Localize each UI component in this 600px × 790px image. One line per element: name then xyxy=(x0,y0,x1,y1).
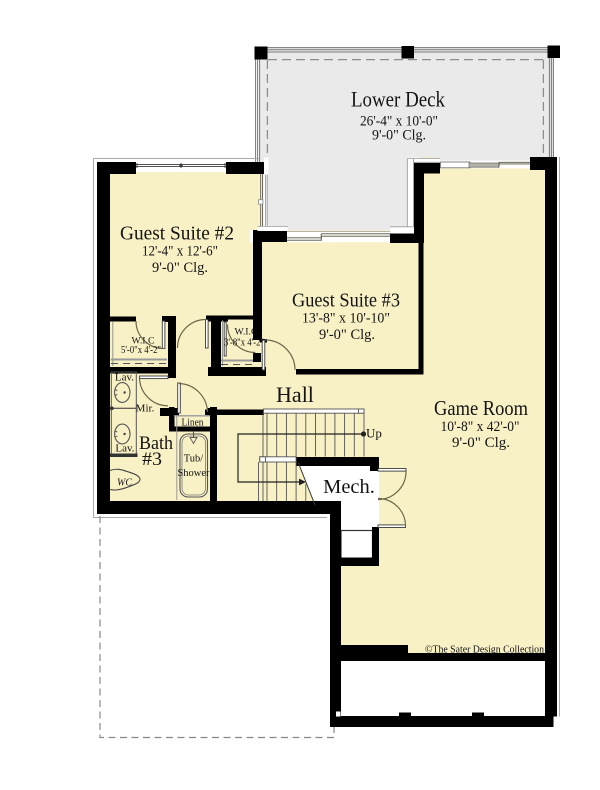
svg-text:Lav.: Lav. xyxy=(115,372,134,384)
svg-text:9'-0" Clg.: 9'-0" Clg. xyxy=(319,327,375,343)
svg-text:3'-8"x 4'-2": 3'-8"x 4'-2" xyxy=(224,338,264,349)
svg-text:WC: WC xyxy=(117,478,132,489)
svg-text:Mech.: Mech. xyxy=(323,476,375,498)
svg-text:9'-0" Clg.: 9'-0" Clg. xyxy=(372,128,426,144)
svg-text:12'-4" x 12'-6": 12'-4" x 12'-6" xyxy=(142,244,218,260)
svg-text:©The Sater Design Collection: ©The Sater Design Collection xyxy=(425,645,545,656)
svg-text:Up: Up xyxy=(366,426,382,441)
svg-text:#3: #3 xyxy=(142,449,162,470)
svg-text:Linen: Linen xyxy=(182,418,205,429)
svg-text:Hall: Hall xyxy=(276,382,314,407)
svg-text:W.I.C: W.I.C xyxy=(234,327,257,338)
svg-text:Guest Suite #2: Guest Suite #2 xyxy=(120,223,234,245)
svg-text:5'-0"x 4'-2": 5'-0"x 4'-2" xyxy=(121,345,161,356)
svg-text:9'-0" Clg.: 9'-0" Clg. xyxy=(452,435,510,451)
svg-text:Lav.: Lav. xyxy=(115,443,134,455)
svg-text:10'-8" x 42'-0": 10'-8" x 42'-0" xyxy=(441,419,520,435)
svg-text:Tub/: Tub/ xyxy=(184,454,204,465)
svg-text:13'-8" x 10'-10": 13'-8" x 10'-10" xyxy=(302,311,390,327)
svg-text:Lower Deck: Lower Deck xyxy=(351,87,445,112)
svg-text:Mir.: Mir. xyxy=(136,403,155,415)
svg-text:9'-0" Clg.: 9'-0" Clg. xyxy=(152,260,208,276)
svg-text:Shower: Shower xyxy=(177,468,210,479)
svg-text:Guest Suite #3: Guest Suite #3 xyxy=(292,290,400,312)
svg-text:Game Room: Game Room xyxy=(434,396,528,420)
